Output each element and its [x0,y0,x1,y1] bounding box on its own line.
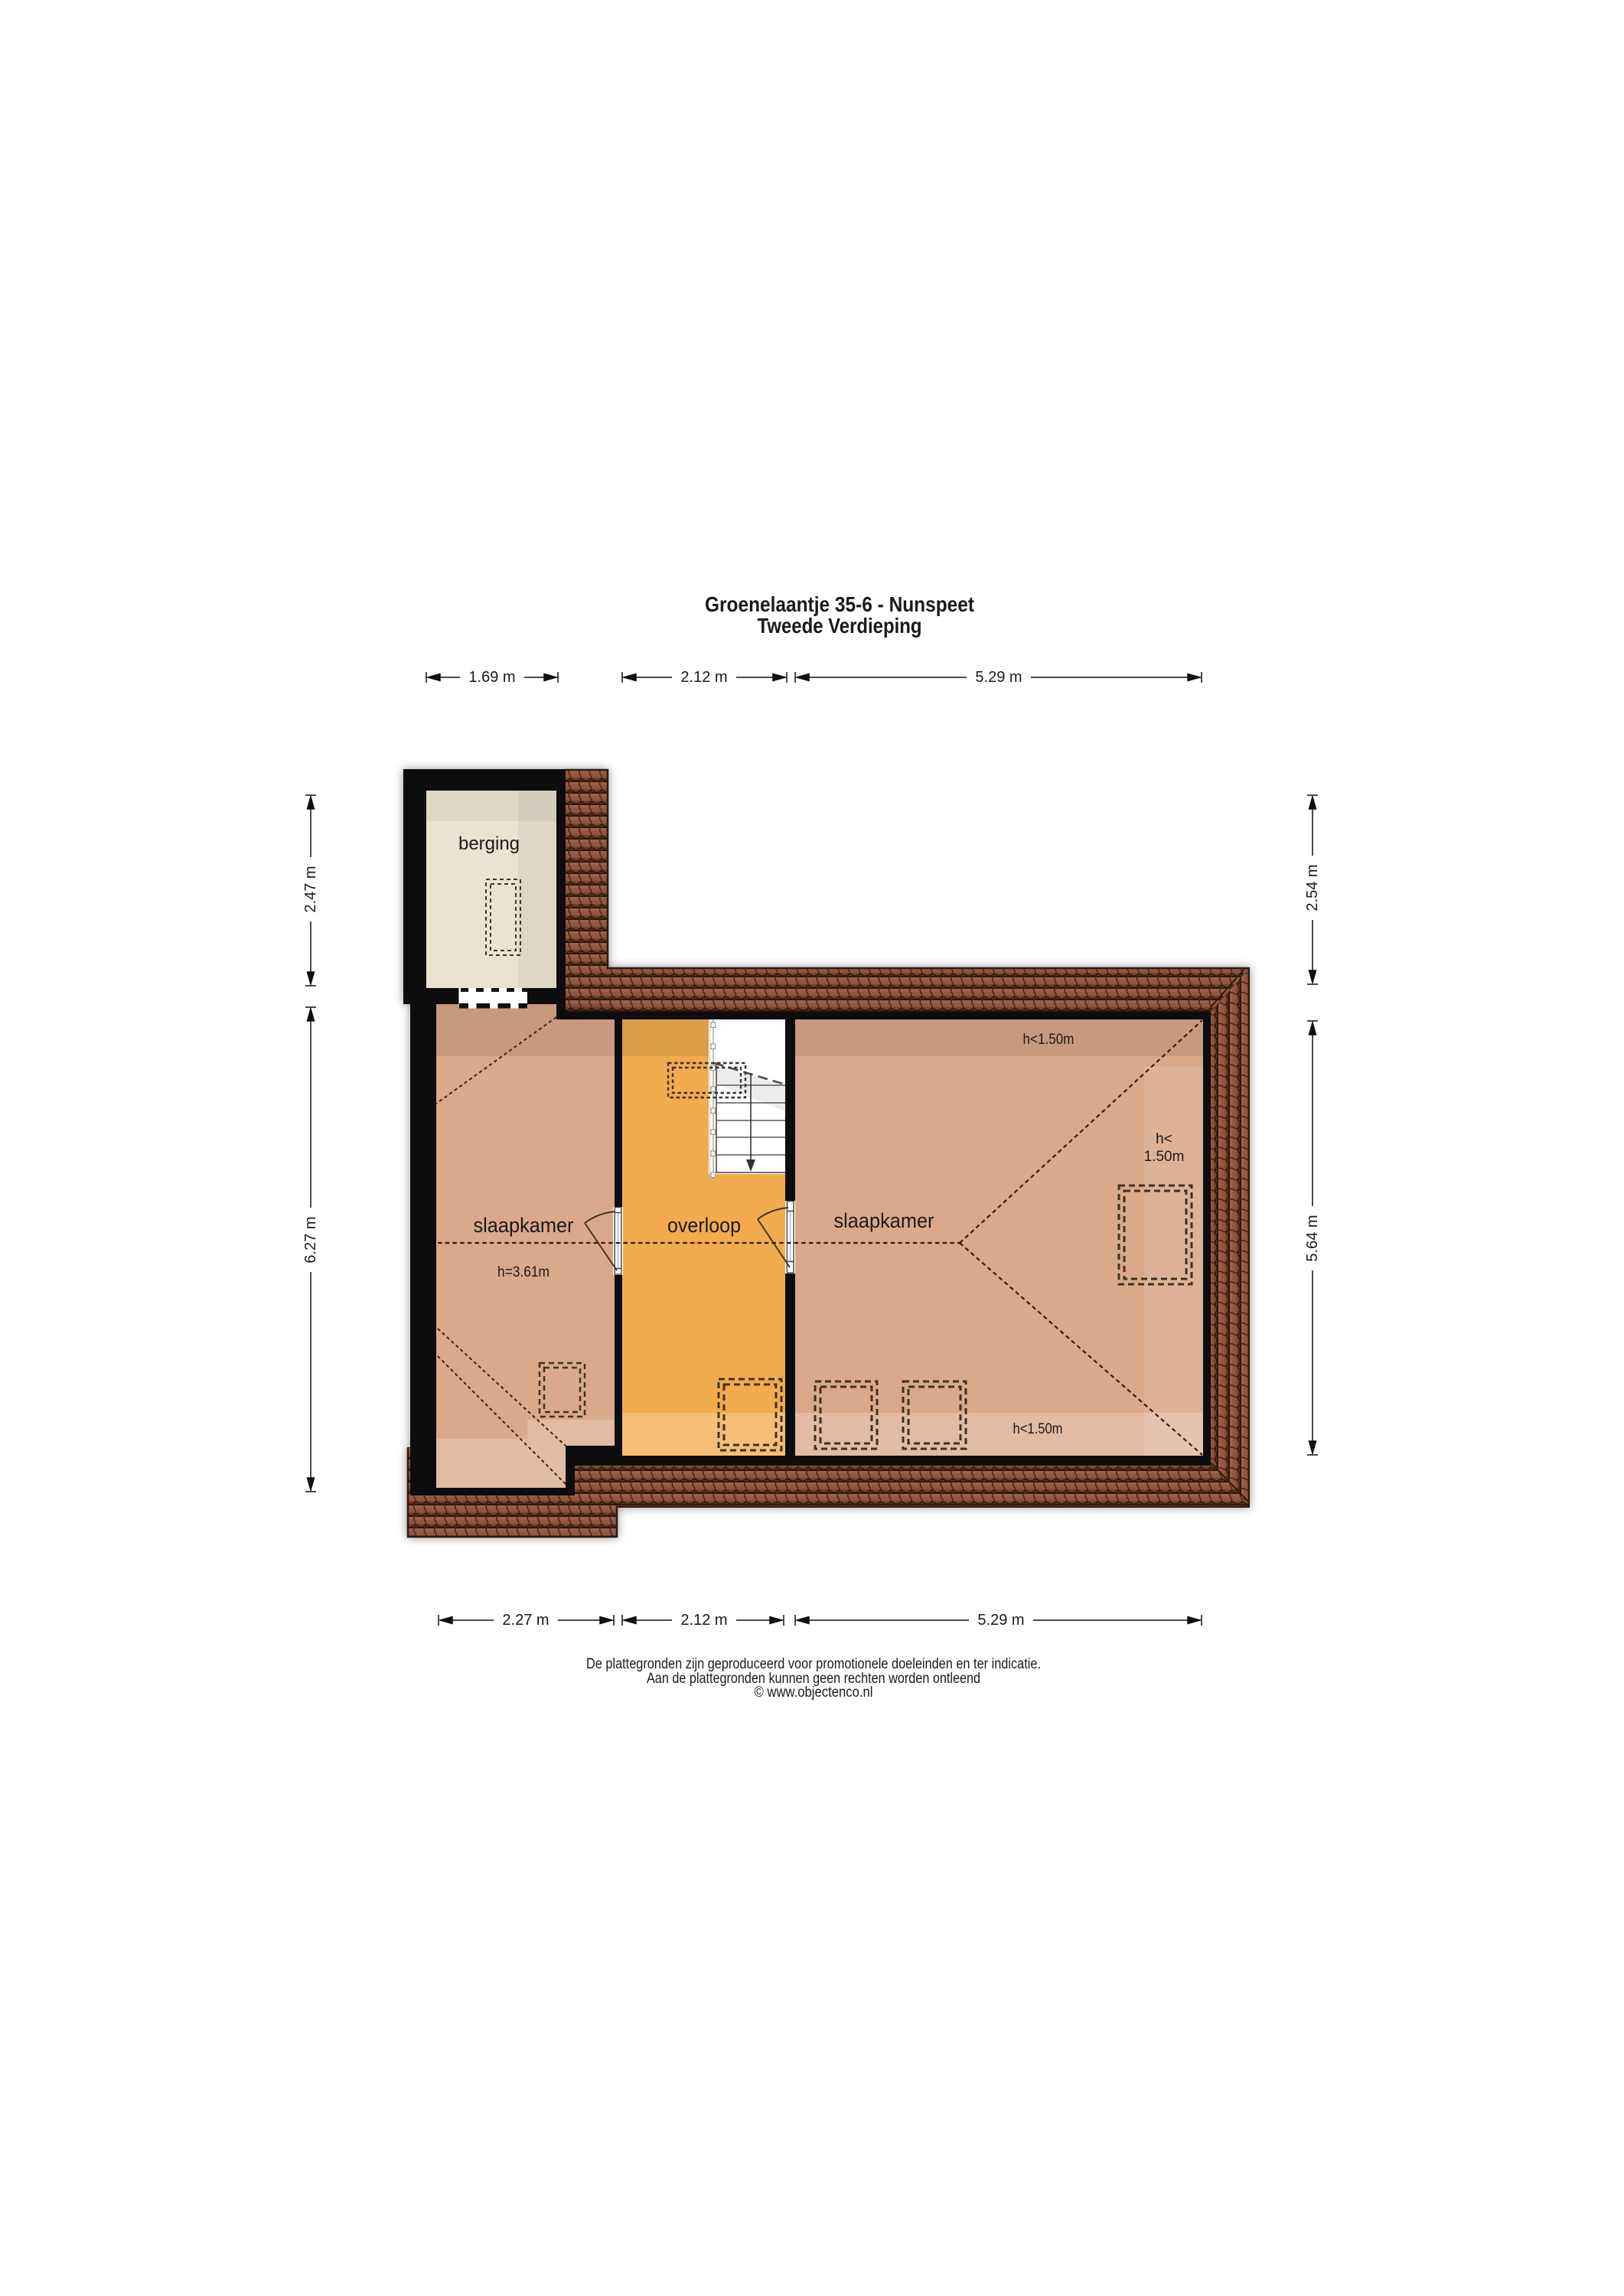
svg-text:© www.objectenco.nl: © www.objectenco.nl [755,1684,873,1701]
svg-text:5.64 m: 5.64 m [1304,1215,1321,1261]
svg-text:h<1.50m: h<1.50m [1013,1421,1063,1437]
svg-text:Tweede Verdieping: Tweede Verdieping [758,614,922,638]
svg-text:2.12 m: 2.12 m [680,1612,727,1629]
svg-text:5.29 m: 5.29 m [977,1612,1024,1629]
svg-text:2.47 m: 2.47 m [302,866,319,912]
svg-text:2.12 m: 2.12 m [680,669,727,686]
svg-text:6.27 m: 6.27 m [302,1216,319,1263]
svg-text:slaapkamer: slaapkamer [474,1214,574,1237]
svg-text:De plattegronden zijn geproduc: De plattegronden zijn geproduceerd voor … [586,1656,1041,1672]
svg-text:h<1.50m: h<1.50m [1023,1032,1075,1048]
svg-text:slaapkamer: slaapkamer [834,1209,934,1232]
svg-text:berging: berging [458,833,520,854]
svg-text:2.27 m: 2.27 m [502,1612,549,1629]
svg-text:h=3.61m: h=3.61m [497,1264,549,1280]
svg-text:h<: h< [1156,1131,1172,1147]
svg-text:5.29 m: 5.29 m [975,669,1022,686]
svg-text:1.69 m: 1.69 m [468,669,515,686]
svg-text:1.50m: 1.50m [1144,1149,1185,1165]
svg-text:Groenelaantje 35-6 - Nunspeet: Groenelaantje 35-6 - Nunspeet [705,592,974,616]
svg-text:2.54 m: 2.54 m [1304,864,1321,911]
svg-text:overloop: overloop [667,1214,741,1237]
